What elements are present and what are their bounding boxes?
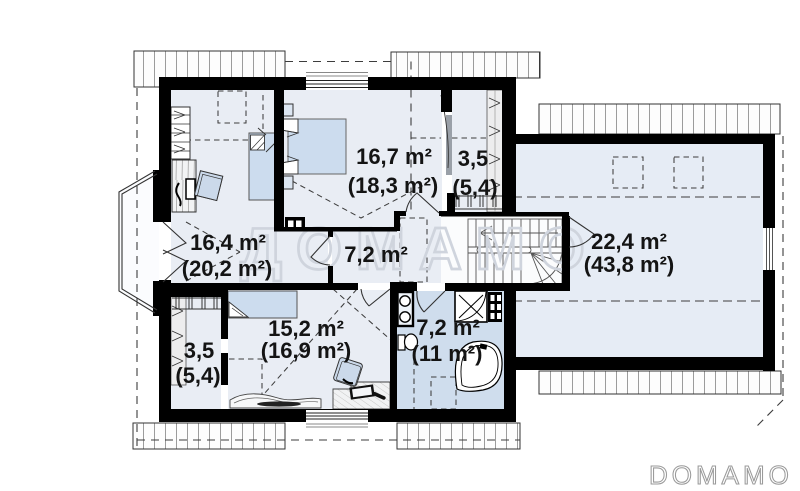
svg-text:(43,8 m²): (43,8 m²) (584, 252, 674, 277)
svg-text:3,5: 3,5 (184, 338, 215, 363)
svg-text:22,4 m²: 22,4 m² (591, 229, 667, 254)
svg-text:(11 m²): (11 m²) (412, 341, 483, 366)
svg-text:(18,3 m²): (18,3 m²) (348, 173, 438, 198)
svg-text:(20,2 m²): (20,2 m²) (182, 256, 272, 281)
svg-text:ДОМАМО: ДОМАМО (240, 216, 599, 282)
svg-text:7,2 m²: 7,2 m² (344, 242, 408, 267)
svg-text:7,2 m²: 7,2 m² (416, 315, 480, 340)
svg-text:(16,9 m²): (16,9 m²) (261, 338, 351, 363)
svg-text:16,4 m²: 16,4 m² (190, 230, 266, 255)
svg-text:(5,4): (5,4) (175, 363, 220, 388)
svg-text:16,7 m²: 16,7 m² (356, 144, 432, 169)
svg-text:DOMAMO: DOMAMO (649, 460, 793, 490)
svg-text:(5,4): (5,4) (452, 175, 497, 200)
svg-text:3,5: 3,5 (458, 146, 489, 171)
